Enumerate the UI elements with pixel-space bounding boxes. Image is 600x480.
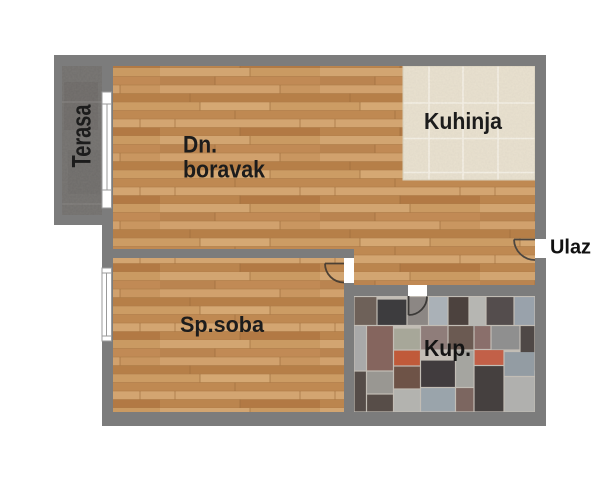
svg-text:boravak: boravak <box>183 157 266 184</box>
svg-text:Sp.soba: Sp.soba <box>180 312 265 337</box>
svg-text:Terasa: Terasa <box>67 104 97 168</box>
svg-text:Kuhinja: Kuhinja <box>424 108 502 134</box>
svg-text:Dn.: Dn. <box>183 132 217 159</box>
svg-text:Kup.: Kup. <box>424 335 471 361</box>
svg-text:Ulaz: Ulaz <box>550 237 591 259</box>
